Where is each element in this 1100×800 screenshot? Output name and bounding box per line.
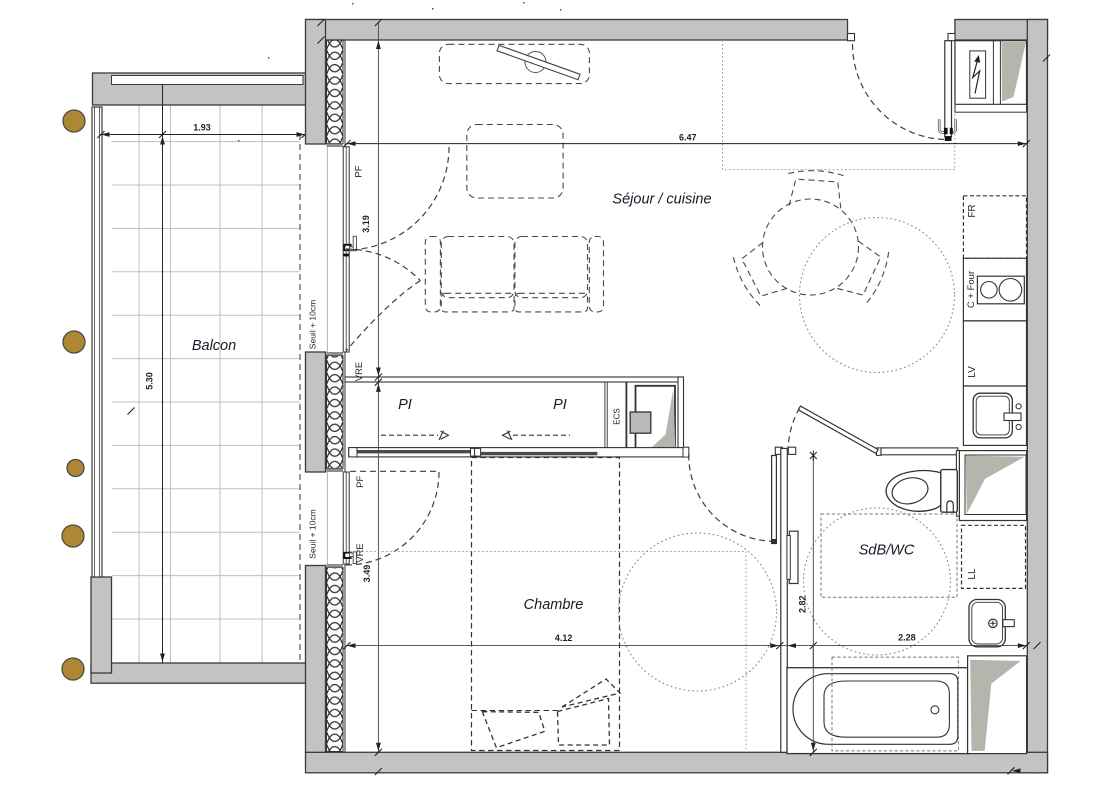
svg-text:Chambre: Chambre xyxy=(524,597,584,613)
svg-text:ECS: ECS xyxy=(613,408,622,424)
svg-text:FR: FR xyxy=(967,204,978,217)
svg-text:C + Four: C + Four xyxy=(966,271,977,308)
svg-text:PF: PF xyxy=(355,476,366,488)
svg-text:2.28: 2.28 xyxy=(898,633,916,643)
svg-text:Séjour / cuisine: Séjour / cuisine xyxy=(612,192,711,208)
svg-text:5.30: 5.30 xyxy=(145,372,155,390)
svg-text:4.12: 4.12 xyxy=(555,633,573,643)
svg-text:VRE: VRE xyxy=(354,362,365,382)
svg-text:6.47: 6.47 xyxy=(679,132,697,142)
svg-text:2.82: 2.82 xyxy=(797,595,807,613)
svg-text:LV: LV xyxy=(967,366,978,378)
svg-text:1.93: 1.93 xyxy=(193,123,211,133)
svg-text:PI: PI xyxy=(553,397,567,413)
svg-text:Balcon: Balcon xyxy=(192,338,236,354)
svg-text:Seuil + 10cm: Seuil + 10cm xyxy=(308,300,318,349)
svg-text:SdB/WC: SdB/WC xyxy=(859,543,915,559)
svg-text:3.19: 3.19 xyxy=(361,215,371,233)
svg-text:PI: PI xyxy=(398,397,412,413)
svg-text:Seuil + 10cm: Seuil + 10cm xyxy=(308,509,318,558)
svg-text:3.49: 3.49 xyxy=(362,565,372,583)
svg-text:VRE: VRE xyxy=(355,543,366,563)
svg-text:LL: LL xyxy=(967,568,978,580)
svg-text:PF: PF xyxy=(354,165,365,177)
